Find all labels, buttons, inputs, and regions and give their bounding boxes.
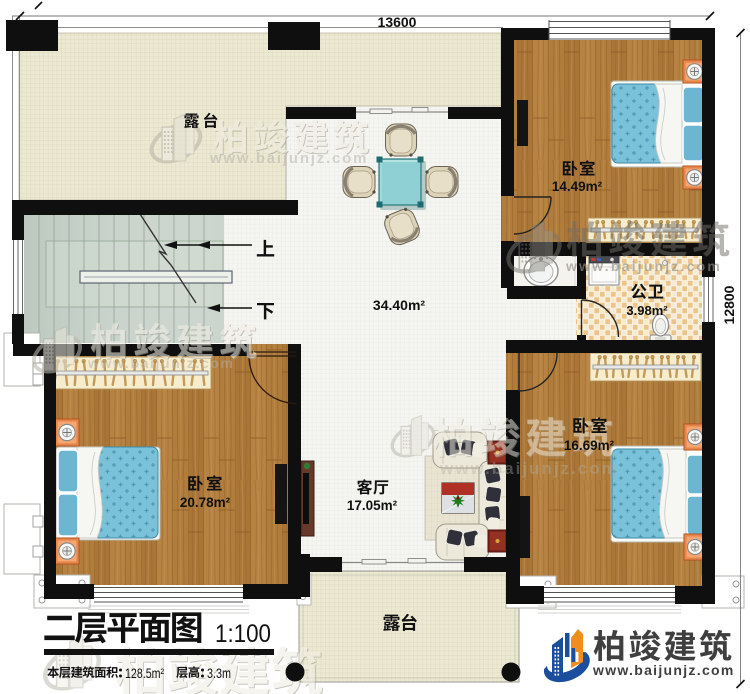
svg-text:16.69m²: 16.69m² [564,438,615,453]
svg-text:13600: 13600 [378,14,417,30]
svg-text:128.5m²: 128.5m² [125,666,164,681]
svg-text:14.49m²: 14.49m² [552,179,603,194]
svg-text:20.78m²: 20.78m² [180,495,231,510]
svg-text:1:100: 1:100 [215,620,271,648]
svg-text:3.3m: 3.3m [207,666,231,681]
svg-text:www.baijunjz.com: www.baijunjz.com [87,355,234,371]
svg-text:www.baijunjz.com: www.baijunjz.com [209,150,368,167]
svg-text:3.98m²: 3.98m² [626,303,668,318]
svg-text:www.baijunjz.com: www.baijunjz.com [439,459,619,478]
svg-text:www.baijunjz.com: www.baijunjz.com [565,258,722,274]
svg-text:www.baijunjz.com: www.baijunjz.com [592,662,735,678]
svg-text:17.05m²: 17.05m² [347,498,398,513]
svg-text:12800: 12800 [721,285,737,324]
svg-text:34.40m²: 34.40m² [373,297,425,313]
